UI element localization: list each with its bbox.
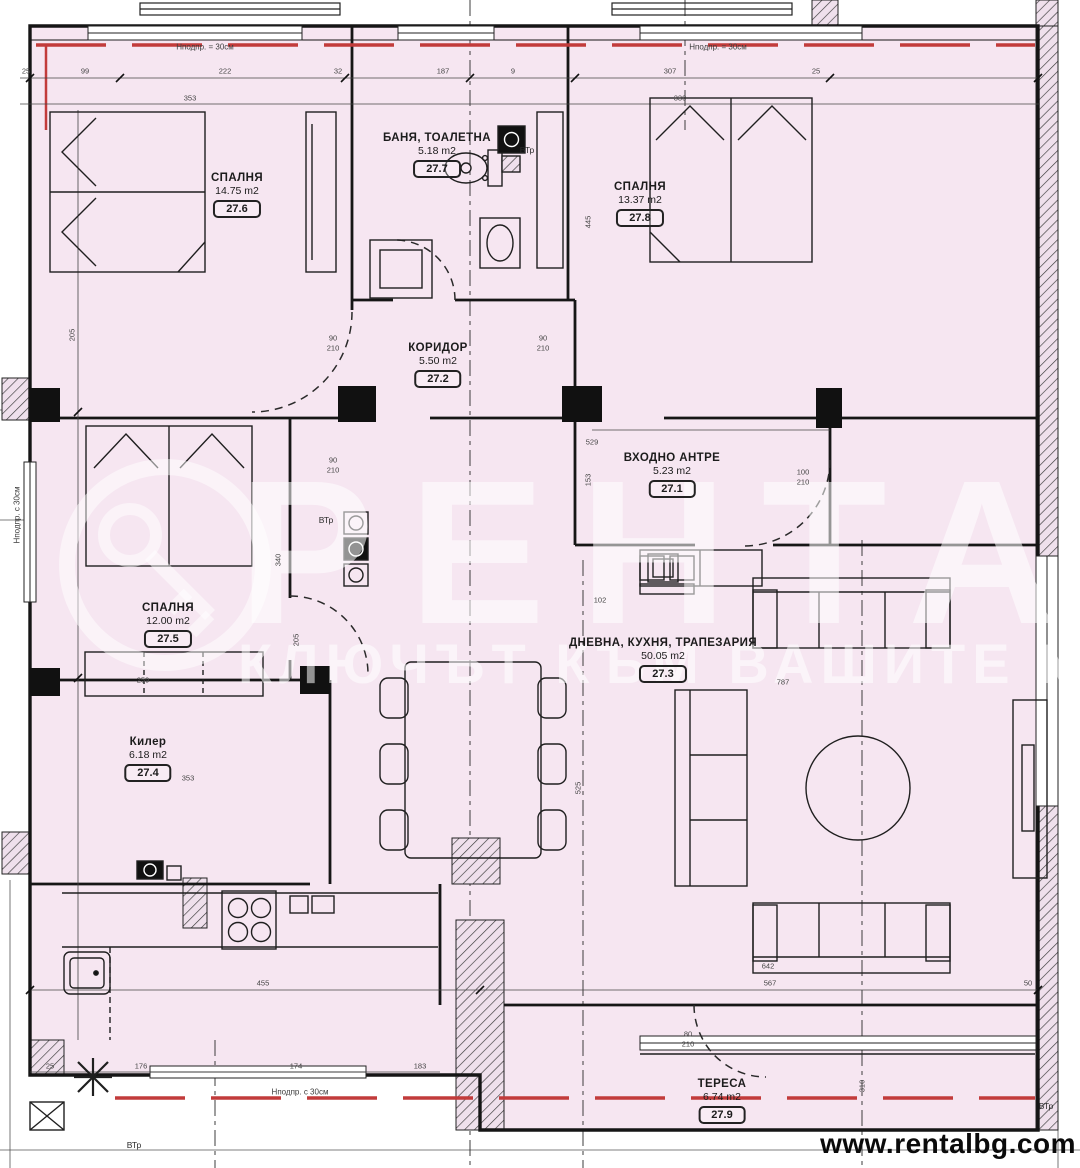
corner-box: [30, 1102, 64, 1130]
ac-unit: [74, 1058, 112, 1096]
floorplan-page: РЕНТАЛ КЛЮЧЪТ КЪМ ВАШИТЕ МЕЧТИ СПАЛНЯ14.…: [0, 0, 1080, 1168]
agency-url: www.rentalbg.com: [820, 1128, 1076, 1160]
top-rails: [140, 3, 792, 15]
floorplan-drawing: [0, 0, 1080, 1168]
